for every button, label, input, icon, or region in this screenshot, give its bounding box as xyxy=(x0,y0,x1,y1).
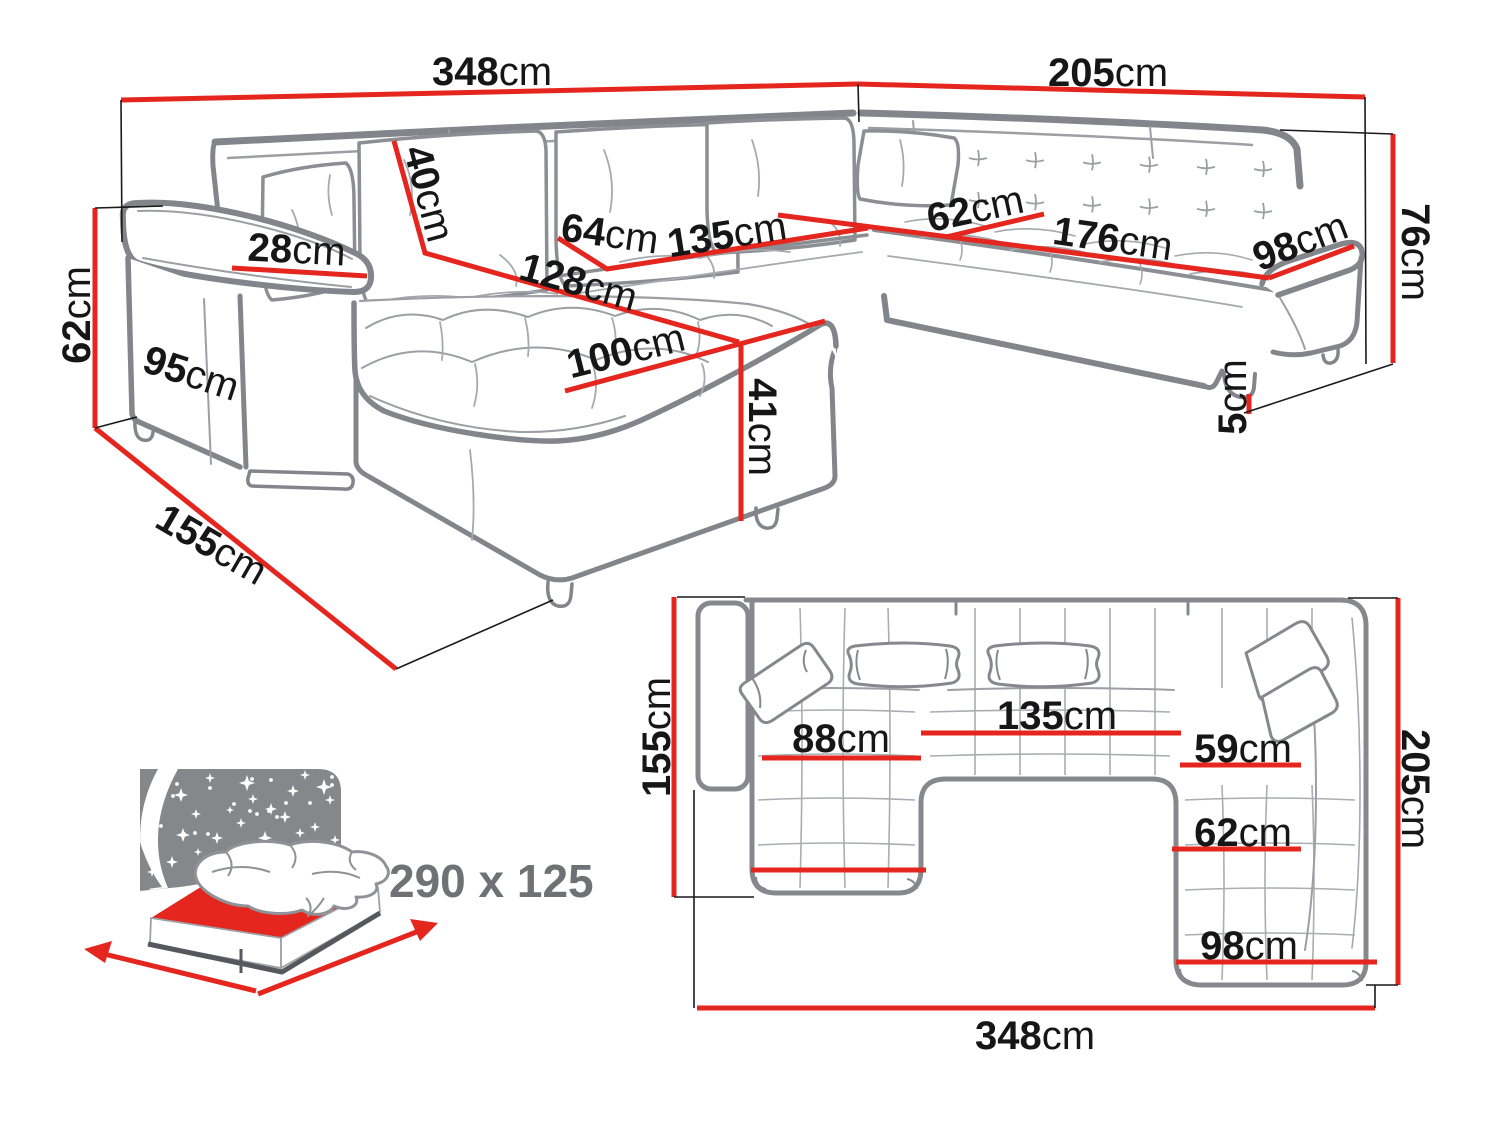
svg-text:205cm: 205cm xyxy=(1048,51,1168,95)
svg-text:28cm: 28cm xyxy=(247,225,347,274)
svg-text:205cm: 205cm xyxy=(1393,729,1437,849)
svg-text:98cm: 98cm xyxy=(1200,924,1298,968)
svg-text:41cm: 41cm xyxy=(740,378,784,476)
svg-text:62cm: 62cm xyxy=(1194,811,1292,855)
svg-text:348cm: 348cm xyxy=(432,50,552,94)
svg-text:348cm: 348cm xyxy=(975,1014,1095,1058)
svg-text:5cm: 5cm xyxy=(1211,359,1255,435)
svg-text:62cm: 62cm xyxy=(55,266,99,364)
svg-text:155cm: 155cm xyxy=(635,677,679,797)
svg-text:290 x 125: 290 x 125 xyxy=(389,855,594,907)
svg-text:135cm: 135cm xyxy=(997,694,1117,738)
svg-text:76cm: 76cm xyxy=(1393,203,1437,301)
svg-text:88cm: 88cm xyxy=(792,717,890,761)
svg-text:59cm: 59cm xyxy=(1194,727,1292,771)
